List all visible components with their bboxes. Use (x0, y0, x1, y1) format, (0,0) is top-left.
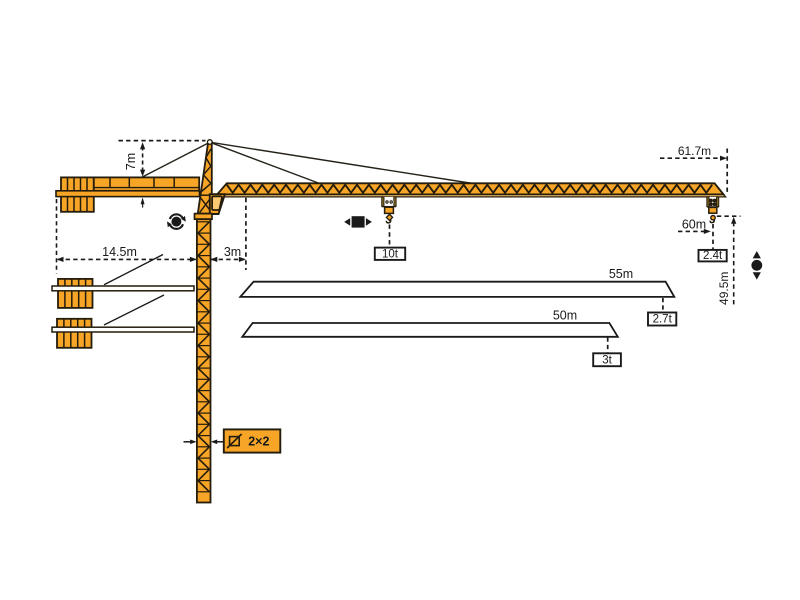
svg-text:49.5m: 49.5m (717, 272, 731, 305)
svg-text:55m: 55m (609, 267, 633, 281)
svg-text:3m: 3m (224, 245, 241, 259)
svg-text:10t: 10t (382, 249, 399, 261)
svg-text:14.5m: 14.5m (102, 245, 137, 259)
svg-text:2×2: 2×2 (248, 435, 269, 449)
svg-text:2.7t: 2.7t (653, 314, 673, 326)
svg-text:7m: 7m (124, 153, 138, 170)
svg-text:50m: 50m (553, 308, 577, 322)
svg-text:2.4t: 2.4t (703, 250, 723, 262)
svg-text:60m: 60m (682, 217, 706, 231)
svg-text:3t: 3t (602, 354, 612, 366)
svg-text:61.7m: 61.7m (678, 144, 711, 158)
